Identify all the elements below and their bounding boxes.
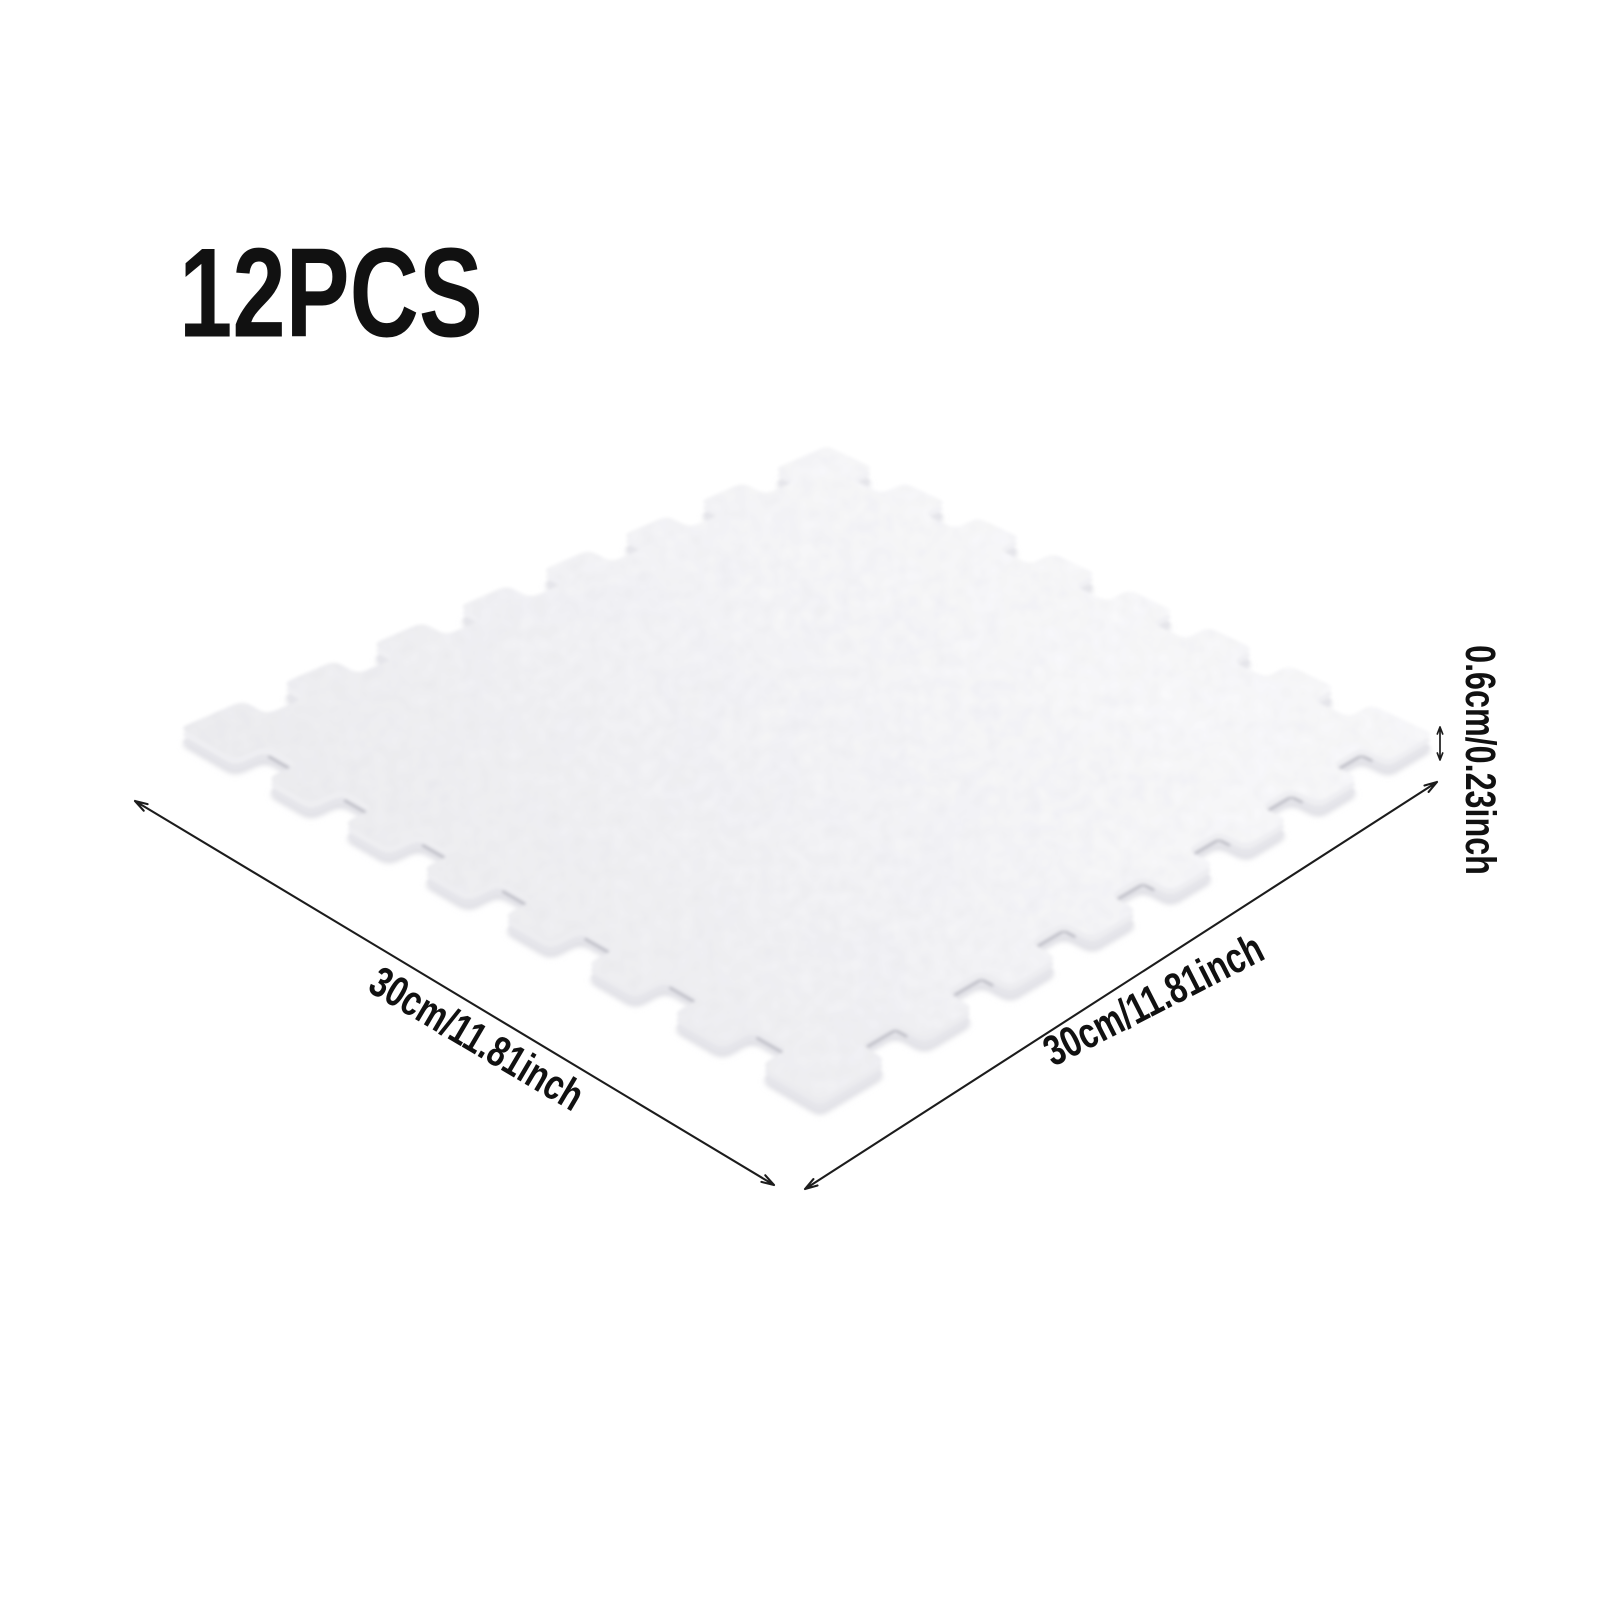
svg-text:30cm/11.81inch: 30cm/11.81inch <box>361 957 592 1120</box>
svg-text:12PCS: 12PCS <box>179 221 483 363</box>
svg-text:0.6cm/0.23inch: 0.6cm/0.23inch <box>1457 645 1504 875</box>
svg-text:30cm/11.81inch: 30cm/11.81inch <box>1036 924 1272 1076</box>
